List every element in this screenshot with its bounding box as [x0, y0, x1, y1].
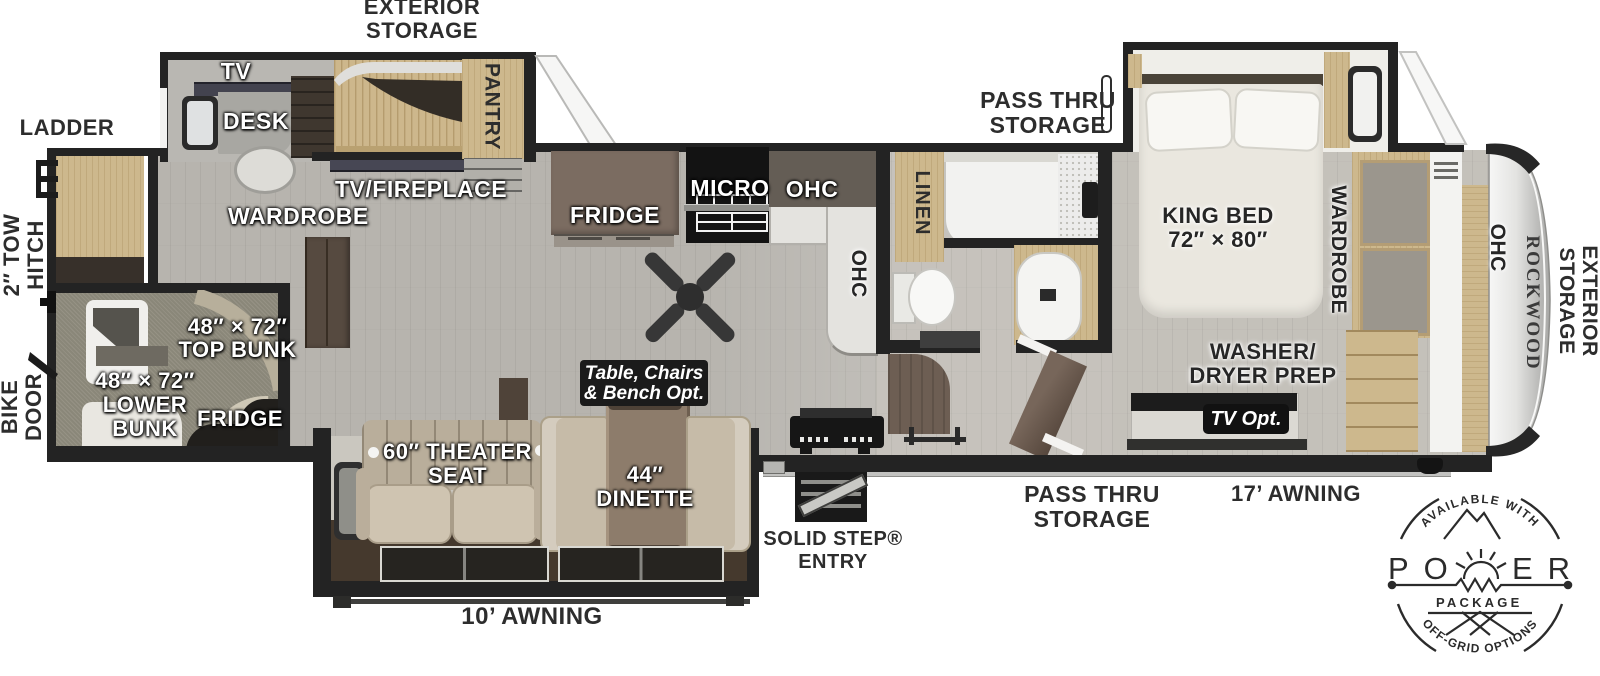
- svg-text:PACKAGE: PACKAGE: [1436, 595, 1522, 610]
- svg-text:PO: PO: [1388, 551, 1463, 586]
- svg-text:AVAILABLE WITH: AVAILABLE WITH: [1418, 492, 1543, 530]
- svg-text:ER: ER: [1512, 551, 1580, 586]
- svg-text:OFF-GRID OPTIONS: OFF-GRID OPTIONS: [1420, 616, 1541, 656]
